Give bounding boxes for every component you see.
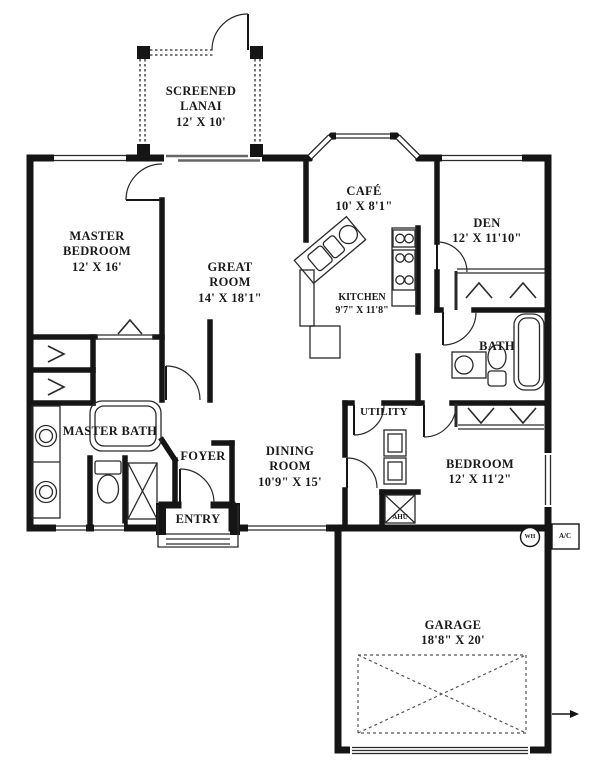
bathtub [514, 314, 544, 390]
stove [393, 250, 415, 290]
closet-rod-icon [466, 283, 492, 298]
kitchen-counter [300, 270, 314, 326]
closet-rod-icon [510, 408, 536, 423]
garage-elements [358, 655, 526, 733]
bedroom-window [544, 453, 553, 507]
ac-unit-box [552, 524, 579, 549]
master-bath-fixtures [32, 401, 161, 519]
shower [128, 463, 157, 519]
den-window [442, 153, 522, 163]
dining-window [248, 524, 326, 533]
ahu-closet [385, 495, 415, 523]
master-bedroom-window [54, 153, 126, 163]
bath-toilet [488, 345, 506, 386]
closet-rod-icon [118, 320, 142, 334]
dryer [384, 458, 406, 484]
floor-plan: SCREENED LANAI 12' X 10' CAFÉ 10' X 8'1"… [0, 0, 600, 768]
direction-arrow-icon [552, 710, 579, 718]
closet-rod-icon [48, 379, 64, 395]
lanai-structure [137, 14, 263, 157]
water-heater-circle [521, 528, 540, 547]
bath-door [443, 312, 476, 345]
den-door [437, 242, 467, 272]
cafe-bay-window-center [336, 132, 390, 141]
utility-door-side [347, 458, 377, 488]
garage-door [350, 745, 530, 755]
bath-fixtures [452, 314, 544, 390]
washer [384, 430, 406, 456]
kitchen-island [310, 326, 340, 358]
toilet [95, 461, 121, 503]
floor-plan-drawing [0, 0, 600, 768]
doors [126, 164, 476, 505]
closet-rod-icon [48, 346, 64, 362]
master-bath-door [166, 366, 200, 400]
sliding-glass-door [164, 154, 262, 163]
closet-rod-icon [468, 408, 494, 423]
vanity-double-sink [32, 406, 60, 518]
garden-tub [90, 401, 161, 451]
cafe-bay-window-right [395, 134, 421, 160]
master-bath-window-1 [56, 524, 86, 533]
screen-door [212, 14, 248, 50]
bath-vanity [452, 352, 486, 378]
closet-rod-icon [510, 283, 536, 298]
utility-door-top [354, 405, 384, 435]
master-bedroom-door [126, 164, 162, 200]
bedroom-door [424, 405, 456, 437]
kitchen-sink-small [393, 230, 415, 247]
kitchen-fixtures [294, 217, 416, 358]
master-bath-window-2 [94, 524, 124, 533]
utility-fixtures [384, 430, 415, 523]
lanai-posts [137, 46, 263, 157]
front-door [180, 469, 214, 505]
interior-walls [30, 158, 548, 528]
entry-stoop [156, 503, 240, 547]
lanai-screens [140, 50, 260, 144]
exterior-walls [30, 136, 548, 750]
cafe-bay-window-left [307, 134, 333, 160]
